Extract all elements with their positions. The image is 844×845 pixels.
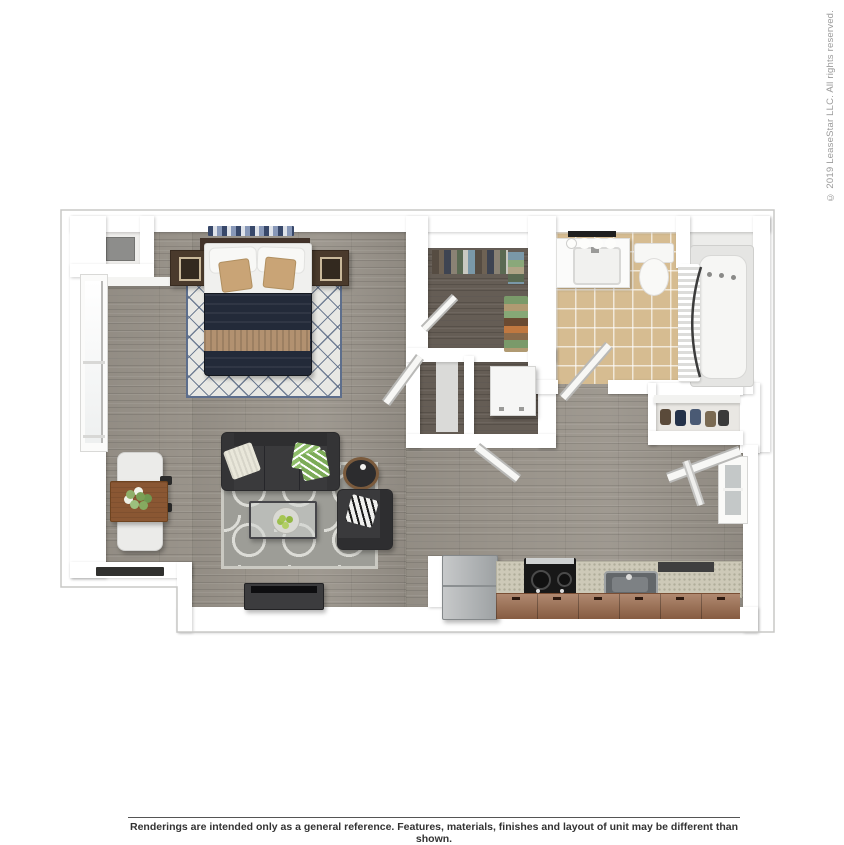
door-leaves	[386, 297, 740, 505]
copyright-text: © 2019 LeaseStar LLC. All rights reserve…	[825, 10, 836, 203]
plan-outline	[61, 210, 774, 632]
disclaimer-text: Renderings are intended only as a genera…	[128, 821, 740, 845]
shower-rod	[692, 267, 701, 377]
footer-divider	[128, 817, 740, 818]
plan-overlay	[0, 0, 844, 844]
floorplan-image	[0, 0, 844, 844]
